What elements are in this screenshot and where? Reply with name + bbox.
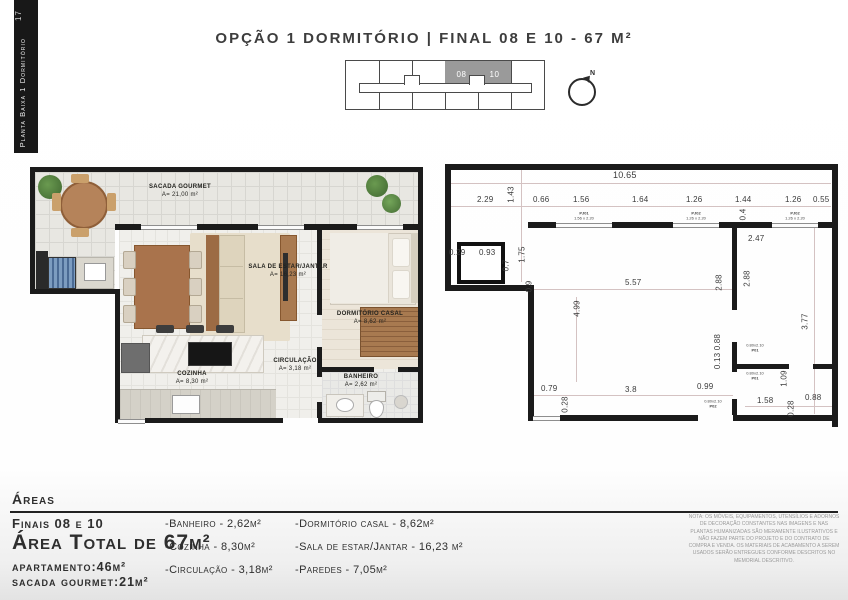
window-label: PJ021.26 x 2.20 <box>686 211 706 221</box>
room-label-circulacao: CIRCULAÇÃO A= 3,18 m² <box>273 358 316 374</box>
wall <box>30 167 35 294</box>
wall <box>732 399 737 415</box>
north-arrow-icon: N <box>568 78 596 106</box>
floor-plan-technical: 10.65 2.29 1.43 0.66 1.56 1.64 1.26 1.44… <box>445 162 843 467</box>
dim-line <box>451 206 831 207</box>
dim: 2.88 <box>743 270 752 286</box>
wall <box>115 224 141 230</box>
chair <box>123 305 136 323</box>
fridge <box>121 343 150 373</box>
wall <box>30 289 120 294</box>
wall <box>445 164 451 291</box>
wall <box>445 164 838 170</box>
chair <box>189 278 202 296</box>
wall <box>418 167 423 423</box>
plant <box>382 194 401 213</box>
wall <box>304 224 357 230</box>
window <box>258 225 304 230</box>
window <box>556 223 612 228</box>
building-key-plan: 08 10 <box>345 60 545 110</box>
wall <box>719 222 772 228</box>
door-label: 0.80x2.10P02 <box>704 399 722 409</box>
wall <box>145 418 283 423</box>
dim: 1.56 <box>573 195 589 204</box>
room-label-sacada: SACADA GOURMET A= 21,00 m² <box>149 184 211 200</box>
window <box>118 419 145 424</box>
dim: 3.8 <box>625 385 637 394</box>
dim: 5.57 <box>625 278 641 287</box>
dim: 3.77 <box>801 313 810 329</box>
door-label: 0.80x2.10P01 <box>746 343 764 353</box>
dim: 2.88 <box>715 274 724 290</box>
dim: 0.66 <box>533 195 549 204</box>
bed-duvet <box>330 233 389 303</box>
area-item-banheiro: -Banheiro - 2,62m² <box>165 518 261 530</box>
dim-line <box>451 183 831 184</box>
grill-cabinet <box>36 251 48 289</box>
floor-plan-render: SACADA GOURMET A= 21,00 m² SALA DE ESTAR… <box>30 167 423 423</box>
stool <box>186 325 204 333</box>
keyplan-notch <box>404 75 420 85</box>
window <box>772 223 818 228</box>
dim: 0.88 <box>805 393 821 402</box>
dim: 0.28 <box>787 400 796 416</box>
disclaimer-note: NOTA: OS MÓVEIS, EQUIPAMENTOS, UTENSÍLIO… <box>688 514 840 565</box>
dim: 2.47 <box>748 234 764 243</box>
bathroom-basin <box>336 398 354 412</box>
chair <box>71 228 89 237</box>
floorplan-sheet: 17 Planta Baixa 1 Dormitório OPÇÃO 1 DOR… <box>0 0 848 600</box>
wall <box>445 285 533 291</box>
window <box>141 225 197 230</box>
round-table <box>60 181 108 229</box>
wall <box>737 364 789 369</box>
wall <box>528 285 534 421</box>
dining-table <box>134 245 190 329</box>
area-item-sala: -Sala de estar/Jantar - 16,23 m² <box>295 541 463 553</box>
dim: 0.4 <box>738 209 747 221</box>
dim: 0.79 <box>541 384 557 393</box>
chair <box>52 193 61 211</box>
headboard <box>411 233 418 303</box>
barbecue-grill <box>48 257 76 289</box>
dim: 1.75 <box>518 246 527 262</box>
keyplan-corridor <box>359 83 532 93</box>
balcony-sink <box>84 263 106 281</box>
wall <box>115 289 120 423</box>
area-item-cozinha: -Cozinha - 8,30m² <box>165 541 255 553</box>
wall <box>197 224 258 230</box>
wall <box>733 415 838 421</box>
dim-line <box>814 228 815 414</box>
dim: 0.99 <box>697 382 713 391</box>
window <box>357 225 403 230</box>
area-item-circulacao: -Circulação - 3,18m² <box>165 564 273 576</box>
areas-heading: Áreas <box>12 491 55 507</box>
dim: 4.99 <box>573 300 582 316</box>
dim: 0.13 0.88 <box>713 334 722 369</box>
window <box>673 223 719 228</box>
areas-sacada: sacada gourmet:21m² <box>12 575 149 589</box>
cooktop <box>188 342 232 366</box>
page-number: 17 <box>14 6 38 26</box>
chair <box>189 251 202 269</box>
keyplan-notch <box>469 75 485 85</box>
wall <box>318 418 423 423</box>
sofa-frame <box>206 235 219 331</box>
wall <box>813 364 838 369</box>
areas-finals: Finais 08 e 10 <box>12 516 104 531</box>
area-item-paredes: -Paredes - 7,05m² <box>295 564 387 576</box>
chair <box>123 251 136 269</box>
sofa-cushions <box>219 235 245 333</box>
wall <box>832 164 838 427</box>
page-title: OPÇÃO 1 DORMITÓRIO | FINAL 08 E 10 - 67 … <box>0 30 848 47</box>
chair <box>71 174 89 183</box>
dim: 1.44 <box>735 195 751 204</box>
chair <box>107 193 116 211</box>
areas-apartment: apartamento:46m² <box>12 560 126 574</box>
wall <box>317 402 322 418</box>
window <box>533 416 560 421</box>
sofa-seam <box>219 266 243 267</box>
wall <box>30 167 423 172</box>
room-label-cozinha: COZINHA A= 8,30 m² <box>176 371 209 387</box>
wall <box>612 222 673 228</box>
wall <box>818 222 838 228</box>
sidebar-bar: 17 Planta Baixa 1 Dormitório <box>14 0 38 153</box>
bath-mat <box>394 395 408 409</box>
dim: 1.26 <box>785 195 801 204</box>
stool <box>156 325 174 333</box>
room-label-dormitorio: DORMITÓRIO CASAL A= 8,62 m² <box>337 311 403 327</box>
kitchen-sink <box>172 395 200 414</box>
wall <box>322 367 374 372</box>
wall <box>317 347 322 377</box>
dim: 0.93 <box>479 248 495 257</box>
wall <box>560 415 698 421</box>
wall <box>403 224 423 230</box>
pillow <box>392 238 410 267</box>
area-item-dormitorio: -Dormitório casal - 8,62m² <box>295 518 434 530</box>
chair <box>189 305 202 323</box>
wall <box>398 367 423 372</box>
dim: 1.64 <box>632 195 648 204</box>
room-label-sala: SALA DE ESTAR/JANTAR A= 16,23 m² <box>248 264 327 280</box>
dim: 1.43 <box>507 186 516 202</box>
dim: 0.29 <box>449 248 465 257</box>
pillow <box>392 270 410 299</box>
dim: 0.28 <box>561 396 570 412</box>
dim: 1.26 <box>686 195 702 204</box>
dim: 0.9 <box>524 281 533 293</box>
room-label-banheiro: BANHEIRO A= 2,62 m² <box>344 374 378 390</box>
dim: 1.09 <box>780 370 789 386</box>
chair <box>123 278 136 296</box>
window-label: PJ011.56 x 2.20 <box>574 211 594 221</box>
sidebar-label: Planta Baixa 1 Dormitório <box>18 38 27 147</box>
dim-total: 10.65 <box>613 170 637 180</box>
door-label: 0.80x2.10P01 <box>746 371 764 381</box>
window-label: PJ021.26 x 2.20 <box>785 211 805 221</box>
wall <box>732 228 737 310</box>
dim: 2.29 <box>477 195 493 204</box>
wall <box>528 222 556 228</box>
stool <box>216 325 234 333</box>
sofa-seam <box>219 298 243 299</box>
dim-line <box>533 289 736 290</box>
dim-line <box>521 170 522 282</box>
dim: 1.58 <box>757 396 773 405</box>
plant <box>366 175 388 197</box>
areas-divider <box>10 511 838 513</box>
dim: 0.7 <box>501 260 510 272</box>
dim: 0.55 <box>813 195 829 204</box>
